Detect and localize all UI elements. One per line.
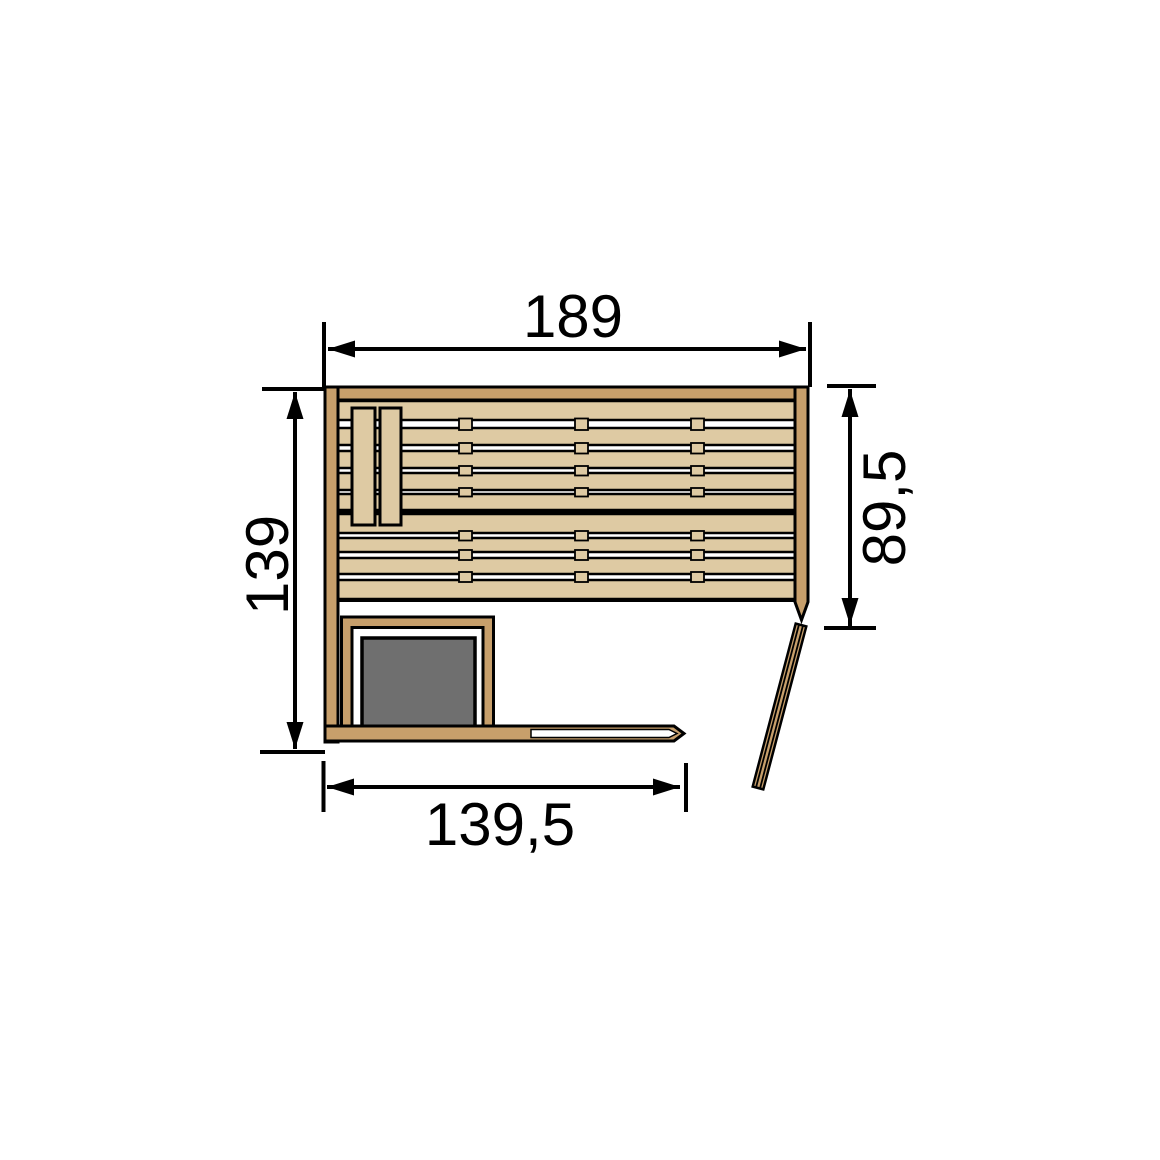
dim-label-bottom-front-width: 139,5 <box>425 791 575 858</box>
arrow-right-icon <box>779 341 806 358</box>
arrow-down-icon <box>287 722 304 749</box>
dim-label-top-width: 189 <box>523 283 623 350</box>
glass-front-panel <box>531 730 677 738</box>
door-leaf-open <box>753 624 807 790</box>
dimension-bottom-front-width: 139,5 <box>324 761 687 858</box>
arrow-up-icon <box>287 392 304 419</box>
arrow-left-icon <box>328 341 355 358</box>
dimension-top-width: 189 <box>324 283 810 387</box>
dimension-right-bench-depth: 89,5 <box>824 386 918 628</box>
arrow-left-icon <box>327 779 354 796</box>
right-wall <box>795 387 808 620</box>
sauna-floor-plan-drawing: 189 139 89,5 139,5 <box>0 0 1160 1160</box>
arrow-up-icon <box>842 390 859 417</box>
back-wall <box>325 387 808 400</box>
floor-plan-canvas: 189 139 89,5 139,5 <box>0 0 1160 1160</box>
arrow-right-icon <box>653 779 680 796</box>
dim-label-right-bench-depth: 89,5 <box>851 450 918 567</box>
bench-planks <box>338 401 795 602</box>
sauna-heater <box>362 638 475 729</box>
bench-headrest-boards <box>352 408 401 525</box>
bench-bottom-edge <box>338 599 795 603</box>
left-wall <box>325 387 338 742</box>
dim-label-left-depth: 139 <box>234 515 301 615</box>
arrow-down-icon <box>842 598 859 625</box>
dimension-left-depth: 139 <box>234 389 325 752</box>
